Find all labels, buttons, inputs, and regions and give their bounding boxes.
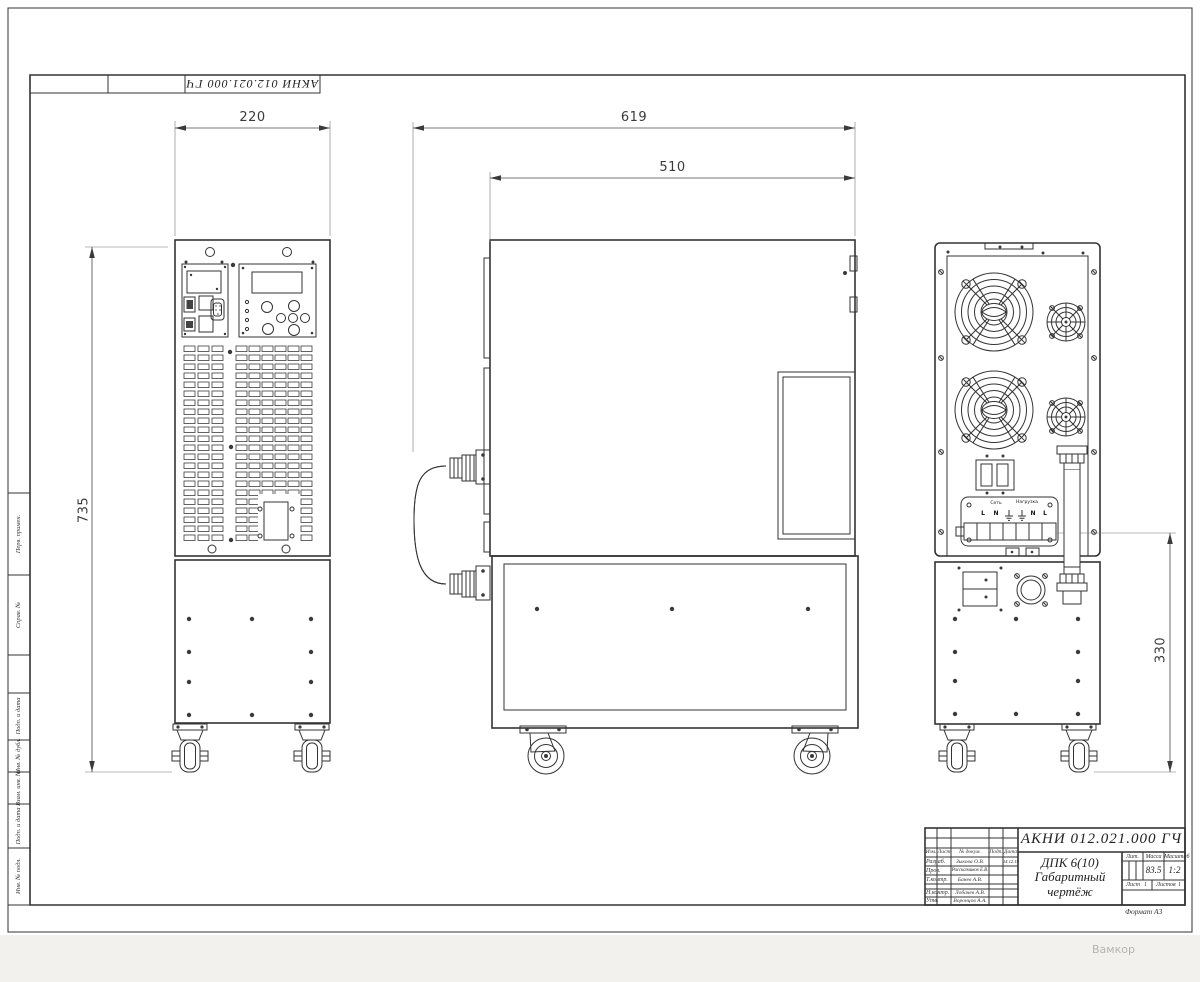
margin-stamp: Подп. и дата: [16, 807, 23, 844]
rear-cable-conduit: [1057, 446, 1087, 604]
terminal-label: N: [993, 511, 998, 517]
tb-role: Разраб.: [926, 859, 945, 865]
earth-symbol-icon: [1018, 510, 1026, 520]
caster: [520, 726, 566, 774]
side-view: [414, 240, 858, 774]
margin-stamp: Перв. примен.: [16, 515, 23, 554]
tb-name-value: Воронцов А.А.: [951, 899, 989, 905]
sheets-label: Листов: [1156, 882, 1176, 888]
caster: [792, 726, 838, 774]
title-doc-type-1: Габаритный: [1018, 870, 1122, 883]
terminal-label: L: [1043, 511, 1047, 517]
dim-overall-depth: 619: [413, 111, 855, 124]
watermark: Вамкор: [1092, 944, 1135, 955]
margin-stamp: Взам. инв. №: [16, 770, 23, 806]
dim-front-width: 220: [175, 111, 330, 124]
title-designation: АКНИ 012.021.000 ГЧ: [1018, 832, 1185, 847]
caster: [294, 724, 330, 772]
scale-value: 1:2: [1164, 866, 1185, 875]
front-view: [172, 240, 330, 772]
margin-stamp: Подп. и дата: [16, 697, 23, 734]
scale-header: Масштаб: [1164, 854, 1185, 860]
caster: [172, 724, 208, 772]
col-doc: № докум.: [951, 850, 989, 856]
tb-name-value: Лобачев А.В.: [951, 891, 989, 897]
col-data: Дата: [1003, 850, 1018, 856]
terminal-label: L: [981, 511, 985, 517]
format-label: Формат А3: [1125, 908, 1162, 916]
mass-header: Масса: [1143, 854, 1164, 860]
title-product-name: ДПК 6(10): [1018, 856, 1122, 869]
tb-role: Н.контр.: [926, 890, 949, 896]
drawing-sheet: АКНИ 012.021.000 ГЧ 220 619 510 735 330 …: [0, 0, 1200, 982]
top-corner-designation: АКНИ 012.021.000 ГЧ: [186, 78, 319, 90]
earth-symbol-icon: [1005, 510, 1013, 520]
tb-role: Утв.: [926, 898, 938, 904]
col-podp: Подп.: [989, 850, 1003, 856]
tb-date: 14.12.19: [1003, 860, 1018, 865]
caster: [939, 724, 975, 772]
col-izm: Изм.: [925, 850, 937, 856]
sheet-label: Лист: [1126, 882, 1140, 888]
load-group-label: Нагрузка: [1016, 501, 1038, 506]
tb-name-value: Зыкова О.В.: [951, 860, 989, 866]
vent-grid-left: [184, 346, 223, 541]
dim-rear-section-height: 330: [1155, 637, 1168, 663]
title-doc-type-2: чертёж: [1018, 885, 1122, 898]
dim-height: 735: [78, 497, 91, 523]
lit-header: Лит.: [1122, 854, 1143, 860]
caster: [1061, 724, 1097, 772]
sheet-value: 1: [1144, 882, 1147, 888]
tb-role: Т.контр.: [926, 877, 948, 883]
tb-name-value: Рассказчиков Е.В.: [951, 869, 989, 874]
mains-group-label: Сеть: [990, 502, 1001, 507]
margin-stamp: Инв. № дубл.: [16, 738, 23, 773]
sheets-value: 1: [1178, 882, 1181, 888]
tb-role: Пров.: [926, 868, 940, 874]
margin-stamp: Инв. № подл.: [16, 858, 23, 894]
terminal-label: N: [1030, 511, 1035, 517]
col-list: Лист: [937, 850, 951, 856]
mass-value: 83.5: [1143, 866, 1164, 875]
margin-stamp: Справ. №: [16, 602, 23, 628]
dim-body-depth: 510: [490, 161, 855, 174]
tb-name-value: Банев А.В.: [951, 878, 989, 884]
